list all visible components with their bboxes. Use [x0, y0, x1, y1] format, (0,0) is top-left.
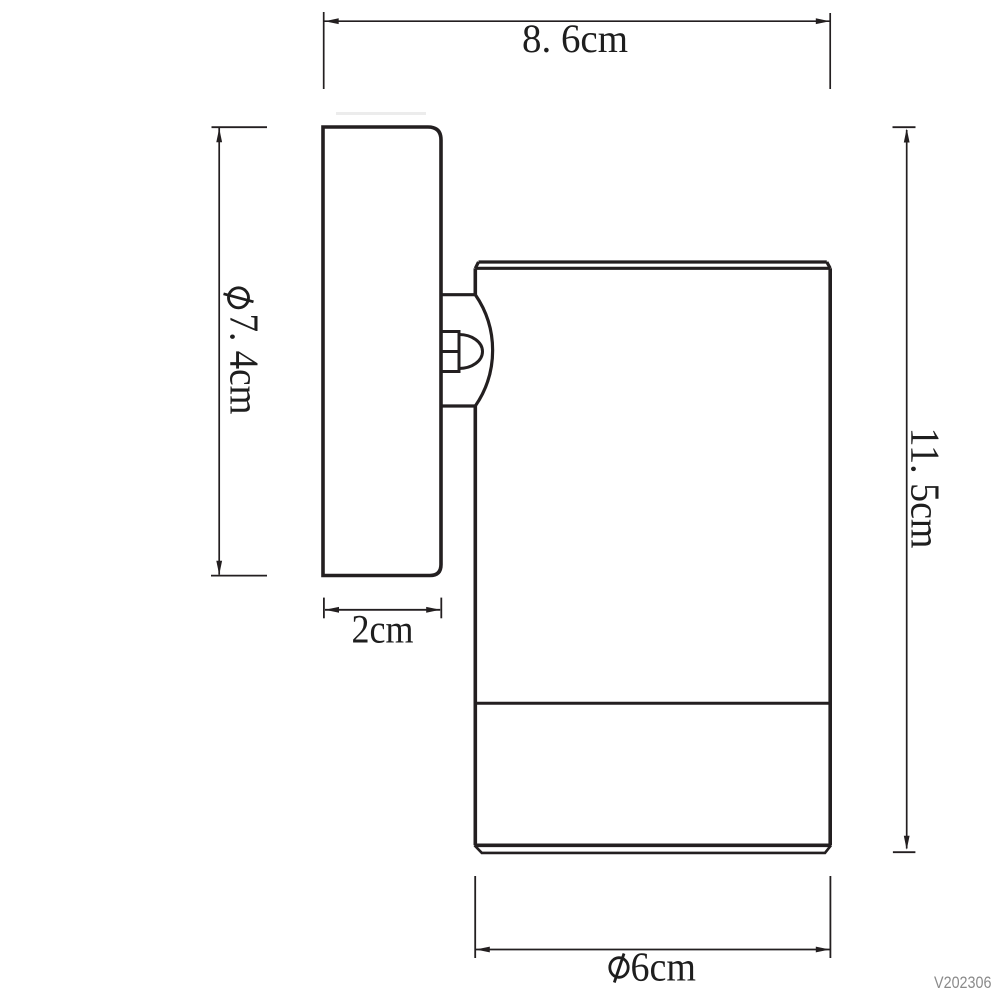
- svg-text:6cm: 6cm: [631, 944, 697, 990]
- svg-text:11. 5cm: 11. 5cm: [903, 428, 949, 549]
- svg-text:2cm: 2cm: [352, 606, 414, 651]
- svg-text:8. 6cm: 8. 6cm: [522, 16, 628, 61]
- svg-text:7. 4cm: 7. 4cm: [222, 314, 268, 415]
- svg-text:V202306: V202306: [934, 973, 992, 992]
